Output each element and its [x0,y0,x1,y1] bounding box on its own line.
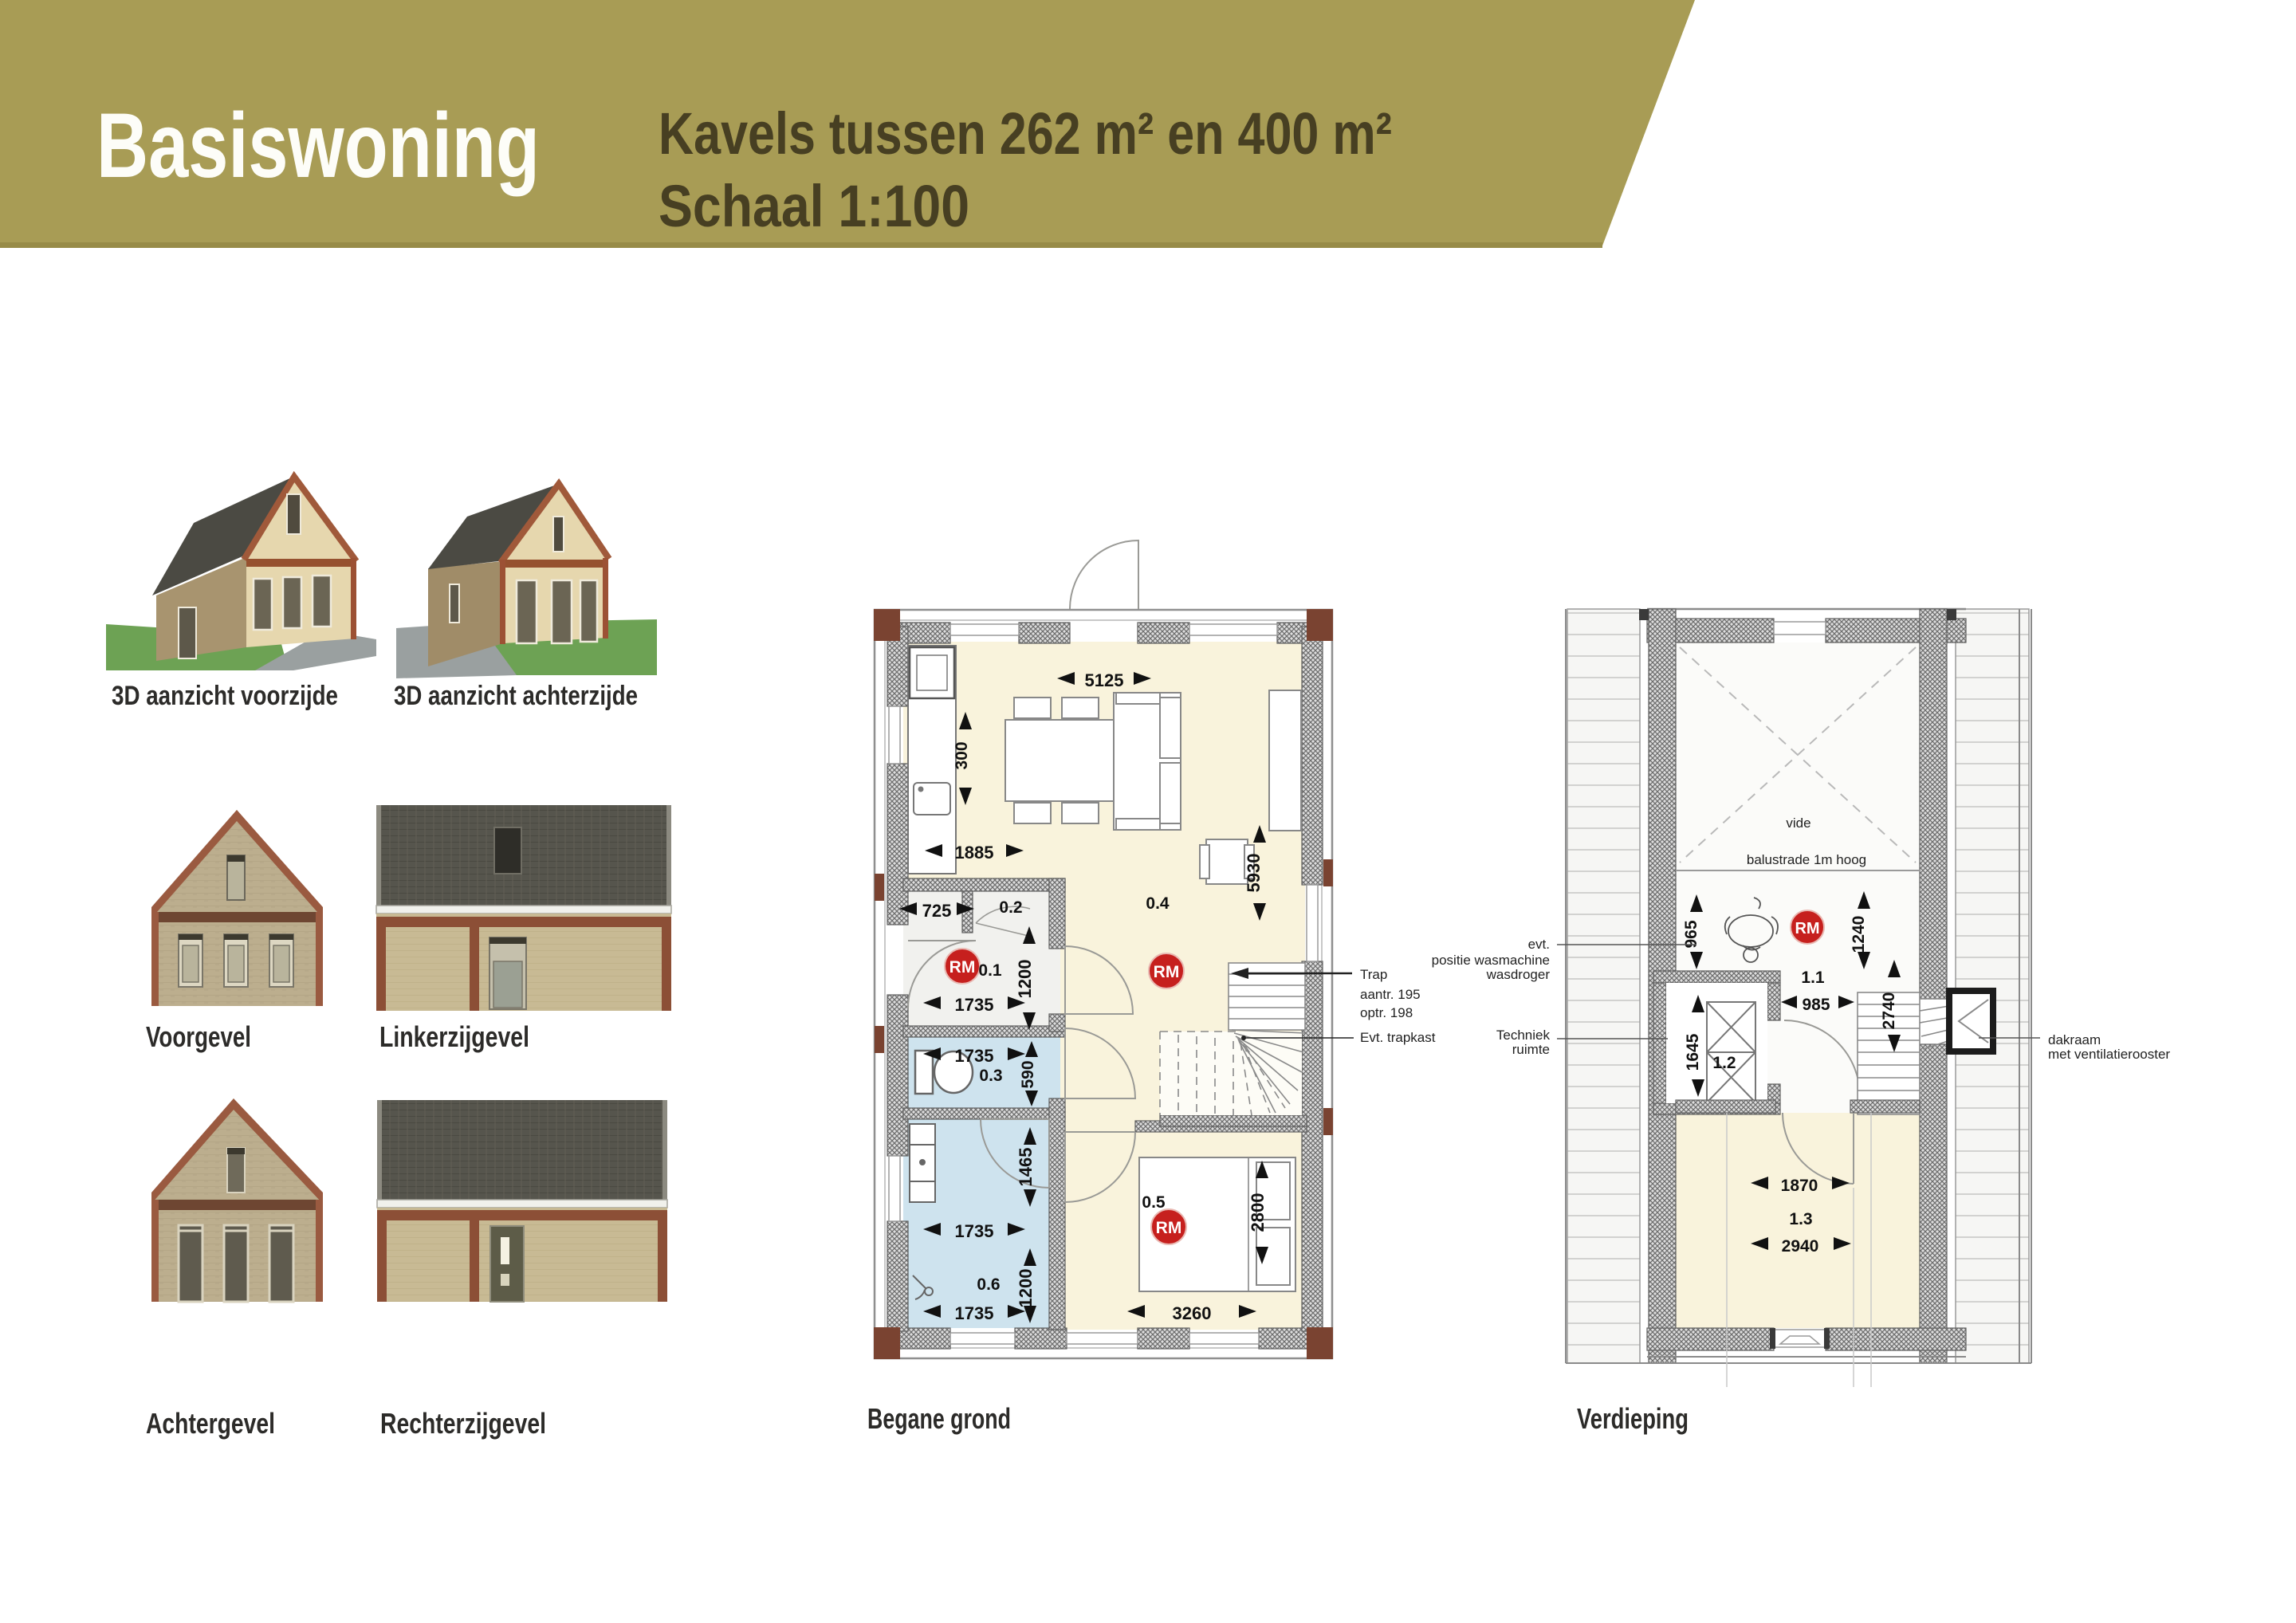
svg-text:Basiswoning: Basiswoning [96,95,540,197]
svg-text:3D aanzicht achterzijde: 3D aanzicht achterzijde [394,681,638,711]
svg-text:RM: RM [1795,920,1819,937]
svg-text:Begane grond: Begane grond [867,1402,1011,1435]
svg-text:Verdieping: Verdieping [1577,1402,1689,1435]
svg-text:0.4: 0.4 [1146,894,1170,913]
svg-text:1885: 1885 [955,843,994,863]
svg-text:positie wasmachine: positie wasmachine [1432,953,1550,968]
svg-text:Achtergevel: Achtergevel [146,1407,275,1440]
svg-text:Schaal 1:100: Schaal 1:100 [659,173,969,239]
svg-text:300: 300 [953,741,971,769]
svg-text:1200: 1200 [1016,1269,1036,1308]
svg-text:5930: 5930 [1244,854,1264,893]
svg-text:3260: 3260 [1173,1303,1212,1323]
svg-text:0.2: 0.2 [999,898,1022,917]
svg-text:725: 725 [922,901,952,921]
svg-text:1.1: 1.1 [1801,969,1825,987]
svg-text:1735: 1735 [955,1221,994,1241]
svg-text:3D aanzicht voorzijde: 3D aanzicht voorzijde [112,681,338,711]
svg-text:1240: 1240 [1850,916,1868,953]
svg-text:590: 590 [1019,1060,1037,1088]
svg-text:1465: 1465 [1016,1148,1036,1187]
svg-text:RM: RM [949,958,976,977]
svg-text:met ventilatierooster: met ventilatierooster [2048,1047,2170,1062]
svg-text:Techniek: Techniek [1496,1028,1551,1043]
svg-text:Linkerzijgevel: Linkerzijgevel [379,1020,529,1053]
svg-text:RM: RM [1156,1219,1182,1237]
svg-text:0.6: 0.6 [977,1275,1000,1294]
svg-text:0.5: 0.5 [1142,1193,1166,1212]
svg-text:evt.: evt. [1528,937,1550,952]
svg-text:1.3: 1.3 [1789,1210,1812,1228]
svg-text:vide: vide [1786,815,1810,831]
svg-text:1735: 1735 [955,995,994,1015]
svg-text:wasdroger: wasdroger [1486,967,1551,982]
svg-text:Trap: Trap [1360,967,1387,982]
svg-text:0.3: 0.3 [979,1067,1002,1085]
svg-text:0.1: 0.1 [978,961,1002,980]
svg-text:RM: RM [1154,963,1180,981]
svg-text:optr. 198: optr. 198 [1360,1005,1413,1020]
svg-text:2740: 2740 [1880,992,1898,1030]
svg-text:Evt. trapkast: Evt. trapkast [1360,1030,1436,1045]
svg-text:Kavels tussen 262 m² en 400 m²: Kavels tussen 262 m² en 400 m² [659,100,1392,167]
svg-text:dakraam: dakraam [2048,1032,2101,1047]
svg-text:2940: 2940 [1782,1237,1819,1256]
svg-text:aantr. 195: aantr. 195 [1360,987,1421,1002]
svg-text:ruimte: ruimte [1512,1042,1550,1057]
svg-text:Rechterzijgevel: Rechterzijgevel [380,1407,546,1440]
svg-text:balustrade 1m hoog: balustrade 1m hoog [1747,852,1866,867]
svg-text:1200: 1200 [1015,960,1035,999]
svg-text:Voorgevel: Voorgevel [146,1020,251,1053]
svg-text:5125: 5125 [1085,670,1124,690]
svg-text:965: 965 [1682,920,1700,948]
svg-text:1870: 1870 [1781,1177,1818,1195]
svg-text:1.2: 1.2 [1712,1054,1736,1072]
svg-text:985: 985 [1802,996,1830,1014]
svg-text:1735: 1735 [955,1303,994,1323]
svg-text:1645: 1645 [1684,1033,1702,1071]
svg-text:2800: 2800 [1248,1193,1268,1232]
svg-text:1735: 1735 [955,1046,994,1066]
